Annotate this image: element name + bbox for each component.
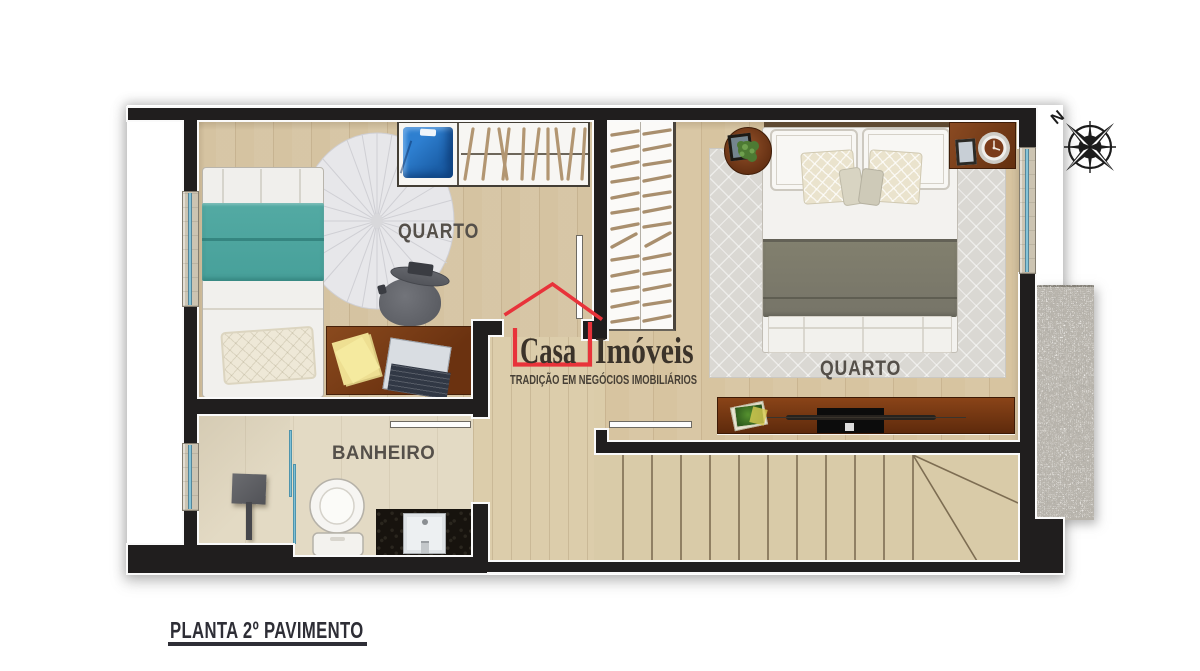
svg-text:N: N (1048, 108, 1068, 128)
